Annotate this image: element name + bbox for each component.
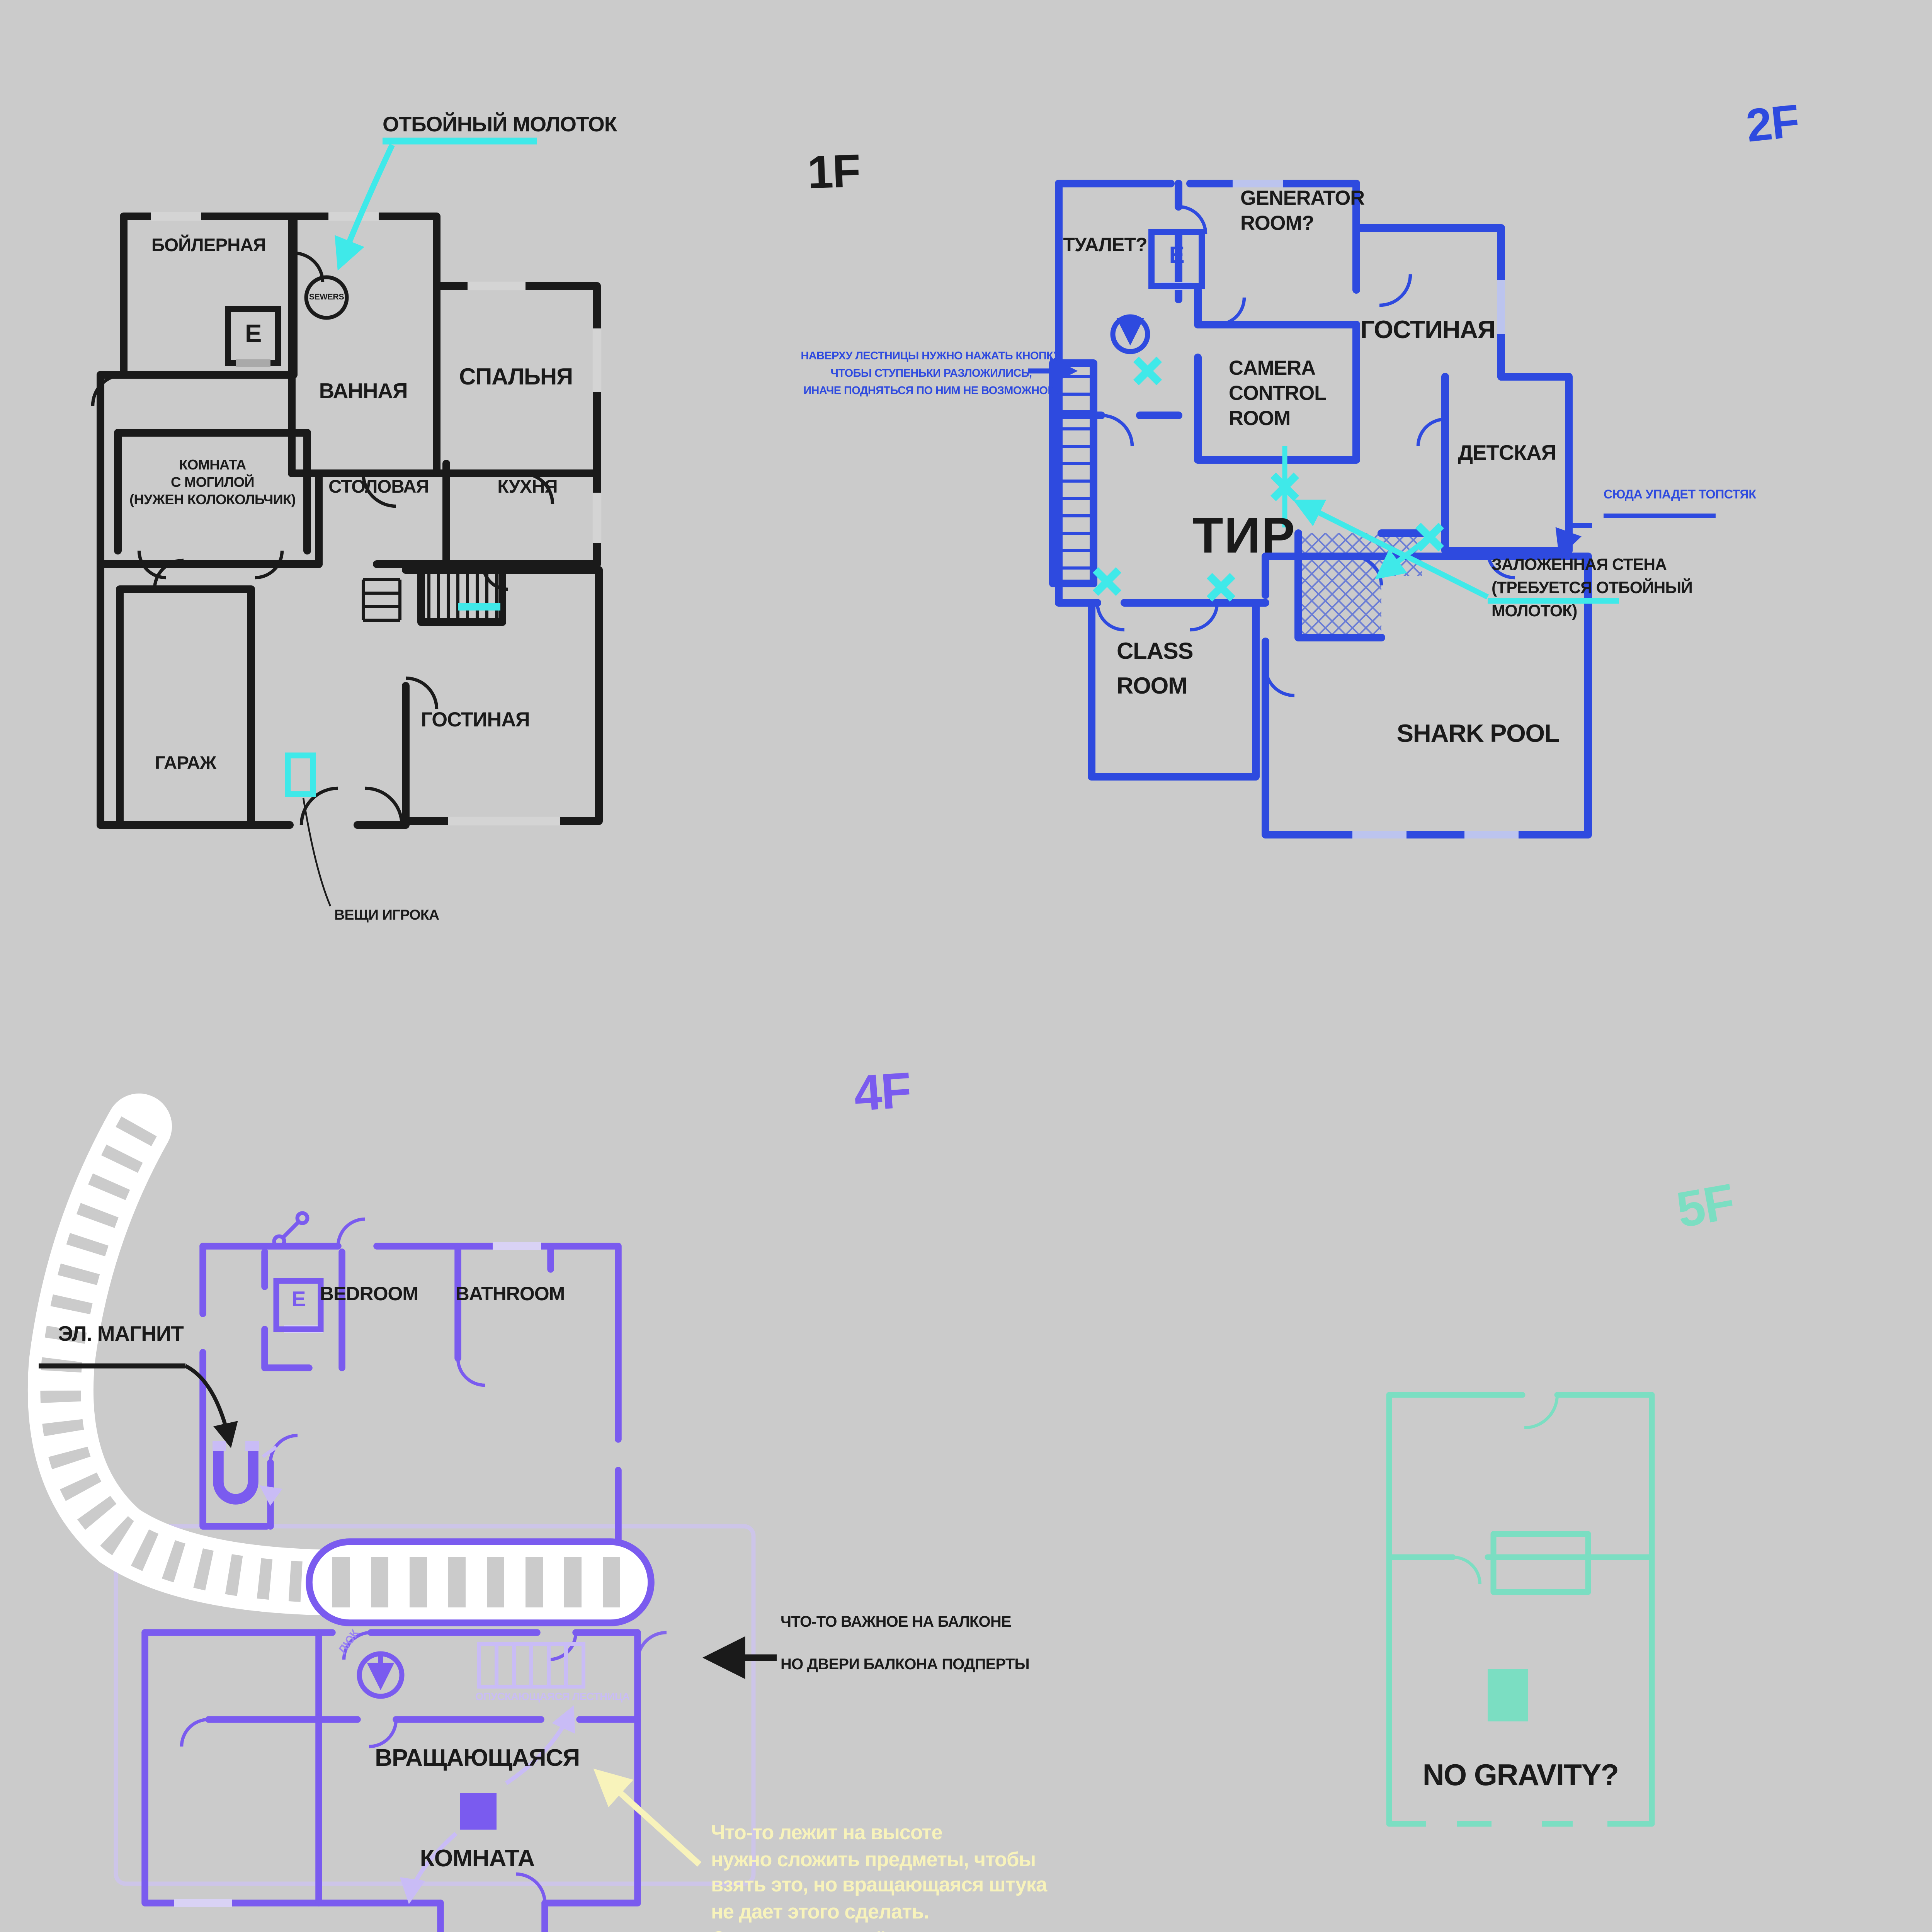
balcony-note: ЧТО-ТО ВАЖНОЕ НА БАЛКОНЕ НО ДВЕРИ БАЛКОН…: [781, 1613, 1029, 1676]
conveyor-track-pill: [309, 1542, 651, 1623]
room-label-bathroom: BATHROOM: [456, 1285, 565, 1309]
fatty-falls-note: СЮДА УПАДЕТ ТОПСТЯК: [1604, 489, 1756, 505]
sewers-label: SEWERS: [309, 292, 344, 302]
player-items-box: [288, 755, 313, 794]
floor-2-plan: ТУАЛЕТ? E GENERATOR ROOM? CAMERA CONTROL…: [811, 87, 1777, 925]
floor-5-label: 5F: [1672, 1170, 1739, 1242]
room-label-bath: ВАННАЯ: [319, 381, 408, 407]
floor-4-plan: ЭЛ. МАГНИТ E BEDROOM BATHROOM ЛЮК ОПУСКА…: [0, 1053, 1082, 1932]
jackhammer-note: ОТБОЙНЫЙ МОЛОТОК: [383, 114, 617, 141]
magnet-note: ЭЛ. МАГНИТ: [58, 1323, 184, 1350]
walled-wall-note: ЗАЛОЖЕННАЯ СТЕНА (ТРЕБУЕТСЯ ОТБОЙНЫЙ МОЛ…: [1492, 554, 1777, 623]
room-label-rotating-1: ВРАЩАЮЩАЯСЯ: [375, 1745, 580, 1775]
room-label-grave: КОМНАТА С МОГИЛОЙ (НУЖЕН КОЛОКОЛЬЧИК): [129, 456, 296, 509]
walled-area-hatch: [1298, 533, 1381, 638]
room-label-class: CLASS ROOM: [1117, 634, 1193, 703]
exit-marker-label: E: [292, 1289, 306, 1315]
game-map-canvas: ОТБОЙНЫЙ МОЛОТОК БОЙЛЕРНАЯ E SEWERS ВАНН…: [0, 0, 1932, 1932]
floor-1-walls: [39, 106, 889, 956]
room-label-dining: СТОЛОВАЯ: [328, 477, 429, 500]
floor-4-label: 4F: [852, 1059, 913, 1125]
height-stack-note: Что-то лежит на высоте нужно сложить пре…: [711, 1822, 1047, 1932]
exit-marker-label: E: [1169, 241, 1184, 270]
drop-ladder-icon: [479, 1644, 583, 1687]
room-label-generator: GENERATOR ROOM?: [1240, 187, 1364, 238]
hatch-down-icon: [359, 1654, 402, 1696]
stairs-button-note: НАВЕРХУ ЛЕСТНИЦЫ НУЖНО НАЖАТЬ КНОПКУ, ЧТ…: [801, 350, 1061, 402]
room-label-bedroom: СПАЛЬНЯ: [459, 363, 573, 392]
floor-5-plan: NO GRAVITY? 5F: [1352, 1159, 1758, 1932]
room-label-living: ГОСТИНАЯ: [1361, 315, 1495, 346]
floor-5-walls: [1352, 1159, 1758, 1932]
rotating-block: [460, 1793, 497, 1830]
gravity-note: NO GRAVITY?: [1423, 1758, 1619, 1796]
room-label-shark: SHARK POOL: [1397, 719, 1559, 750]
room-label-rotating-2: КОМНАТА: [420, 1845, 535, 1875]
room-label-kids: ДЕТСКАЯ: [1458, 442, 1556, 469]
drop-ladder-note: ОПУСКАЮЩАЯСЯ ЛЕСТНИЦА: [475, 1692, 630, 1706]
room-label-garage: ГАРАЖ: [155, 753, 216, 776]
room-label-kitchen: КУХНЯ: [497, 477, 557, 500]
room-label-bedroom: BEDROOM: [320, 1285, 418, 1309]
floor-4-walls: [0, 1053, 1082, 1932]
floor-2-label: 2F: [1744, 94, 1802, 157]
wrench-icon: [274, 1213, 308, 1247]
gravity-block: [1488, 1669, 1528, 1721]
floor-1-plan: ОТБОЙНЫЙ МОЛОТОК БОЙЛЕРНАЯ E SEWERS ВАНН…: [39, 106, 889, 956]
magnet-icon: [213, 1441, 276, 1499]
room-label-toilet: ТУАЛЕТ?: [1063, 236, 1147, 260]
room-label-camera: CAMERA CONTROL ROOM: [1229, 357, 1326, 434]
room-label-boiler: БОЙЛЕРНАЯ: [151, 236, 266, 259]
player-items-note: ВЕЩИ ИГРОКА: [334, 906, 439, 924]
exit-down-icon: [1113, 317, 1148, 352]
room-label-tir: ТИР: [1192, 504, 1296, 567]
room-label-living: ГОСТИНАЯ: [421, 709, 529, 735]
conveyor-track: [61, 1126, 319, 1582]
exit-marker-label: E: [245, 319, 261, 350]
jackhammer-pointer: [288, 141, 537, 794]
